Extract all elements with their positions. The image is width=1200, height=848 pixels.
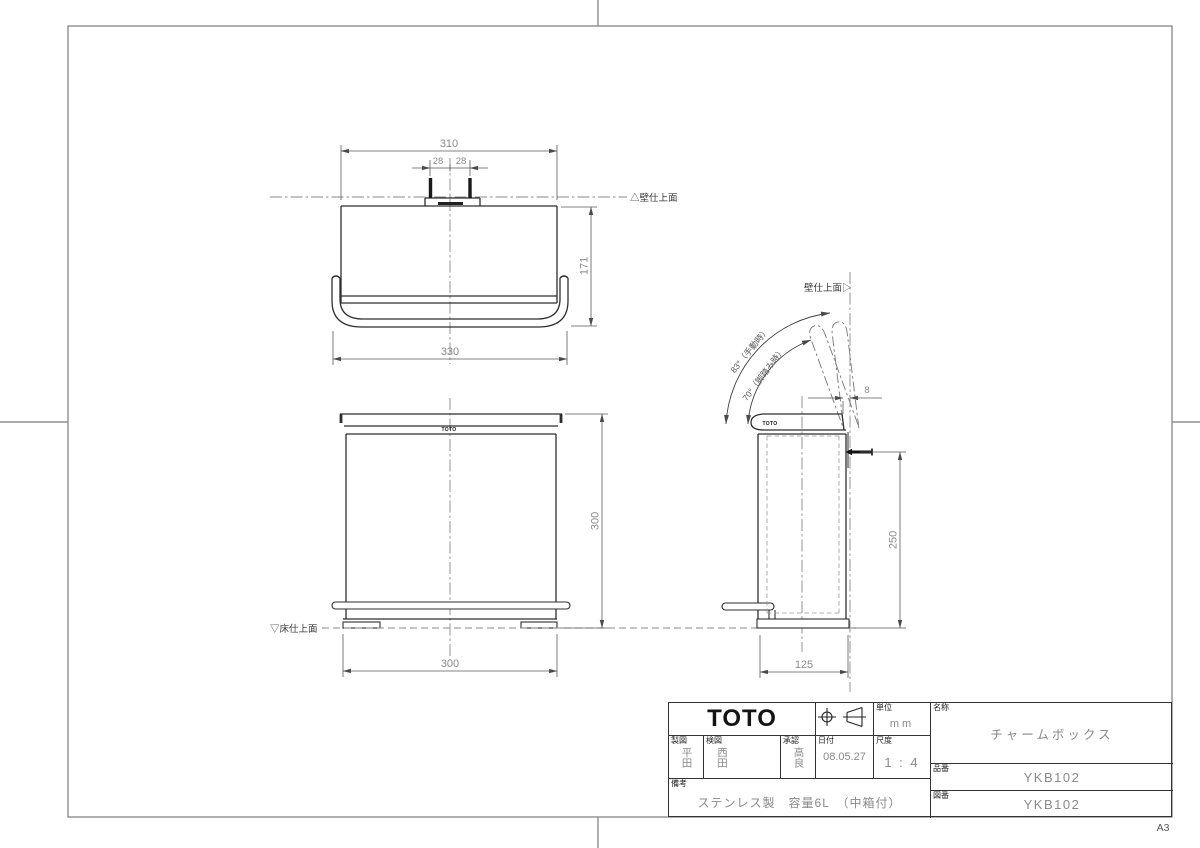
front-lid-logo: TOTO	[442, 427, 457, 433]
remarks-cell: 備考 ステンレス製 容量6L （中箱付）	[669, 779, 931, 818]
side-lid-logo: TOTO	[763, 421, 778, 427]
view-side: 壁仕上面▷ 83°（手動時） 70°（脚踏み時） TOTO	[722, 272, 906, 692]
inner-box-hidden-lines	[767, 436, 839, 616]
projection-symbol-cell	[816, 703, 874, 736]
unit-cell: 単位 mm	[874, 703, 931, 736]
side-view-body	[751, 414, 848, 619]
front-view-body	[340, 414, 562, 619]
dim-side-125: 125	[795, 659, 813, 671]
date-cell: 日付 08.05.27	[816, 736, 874, 779]
dim-front-height-300: 300	[590, 512, 602, 530]
dim-side-250: 250	[888, 531, 900, 549]
scale-cell: 尺度 1 : 4	[874, 736, 931, 779]
view-top: 310 28 28 171 330 △壁仕上面	[270, 138, 678, 365]
approver-name: 高良	[792, 747, 803, 768]
toto-logo: TOTO	[669, 703, 815, 735]
dim-top-310: 310	[440, 138, 458, 150]
dim-top-330: 330	[441, 346, 459, 358]
title-block: TOTO 単位 mm 製図 平田 検図 西田 承認 高良 日付 08.	[668, 702, 1172, 817]
title-block-logo-cell: TOTO	[669, 703, 816, 736]
checker-cell: 検図 西田	[704, 736, 781, 779]
dim-top-28-left: 28	[433, 156, 444, 167]
approver-cell: 承認 高良	[781, 736, 816, 779]
drawing-no-value: YKB102	[931, 791, 1173, 818]
drafter-name: 平田	[680, 747, 691, 768]
name-cell: 名称 チャームボックス	[931, 703, 1173, 764]
dim-side-gap-8: 8	[864, 385, 869, 396]
drawing-no-cell: 図番 YKB102	[931, 791, 1173, 818]
floor-finish-label: ▽床仕上面	[270, 623, 318, 635]
unit-value: mm	[874, 703, 930, 735]
lid-angle-arcs	[726, 313, 830, 424]
wall-finish-label-top: △壁仕上面	[630, 192, 678, 204]
drafter-cell: 製図 平田	[669, 736, 704, 779]
remarks-value: ステンレス製 容量6L （中箱付）	[669, 779, 930, 818]
dim-top-171: 171	[579, 257, 591, 275]
product-no-value: YKB102	[931, 764, 1173, 790]
dim-top-28-right: 28	[456, 156, 467, 167]
third-angle-projection-icon	[816, 703, 868, 731]
dim-front-width-300: 300	[441, 658, 459, 670]
sheet-size-label: A3	[1157, 822, 1170, 834]
drawing-sheet: A3	[0, 0, 1200, 848]
scale-value: 1 : 4	[874, 736, 930, 778]
wall-finish-label-side: 壁仕上面▷	[804, 282, 852, 294]
view-front: TOTO ▽床仕上面 300 300	[270, 398, 856, 677]
date-value: 08.05.27	[816, 736, 873, 778]
checker-name: 西田	[716, 747, 727, 768]
product-no-cell: 品番 YKB102	[931, 764, 1173, 791]
name-value: チャームボックス	[931, 703, 1173, 763]
